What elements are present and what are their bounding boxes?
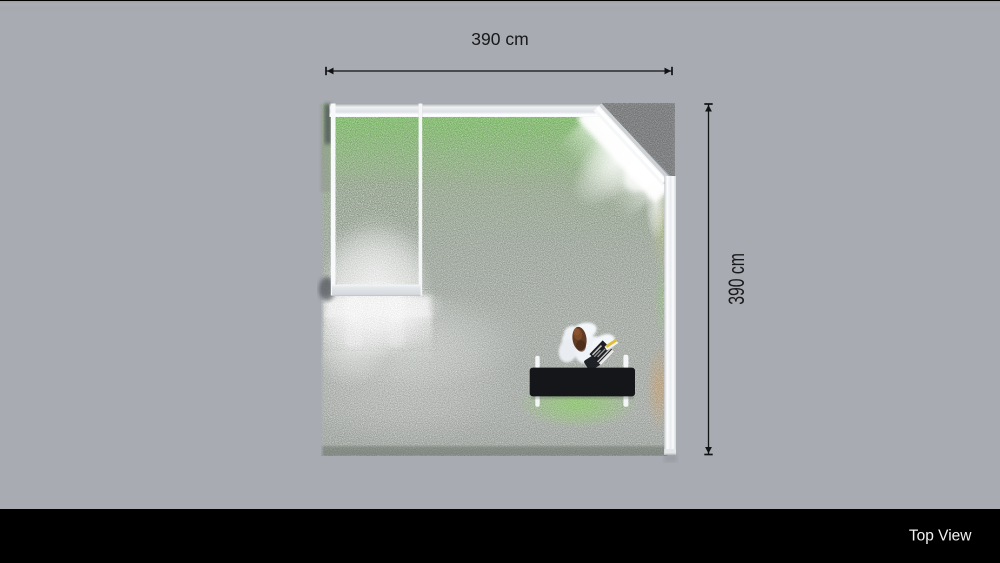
svg-text:390 cm: 390 cm — [726, 253, 750, 305]
svg-text:Top View: Top View — [909, 527, 972, 544]
svg-text:390 cm: 390 cm — [471, 29, 528, 49]
